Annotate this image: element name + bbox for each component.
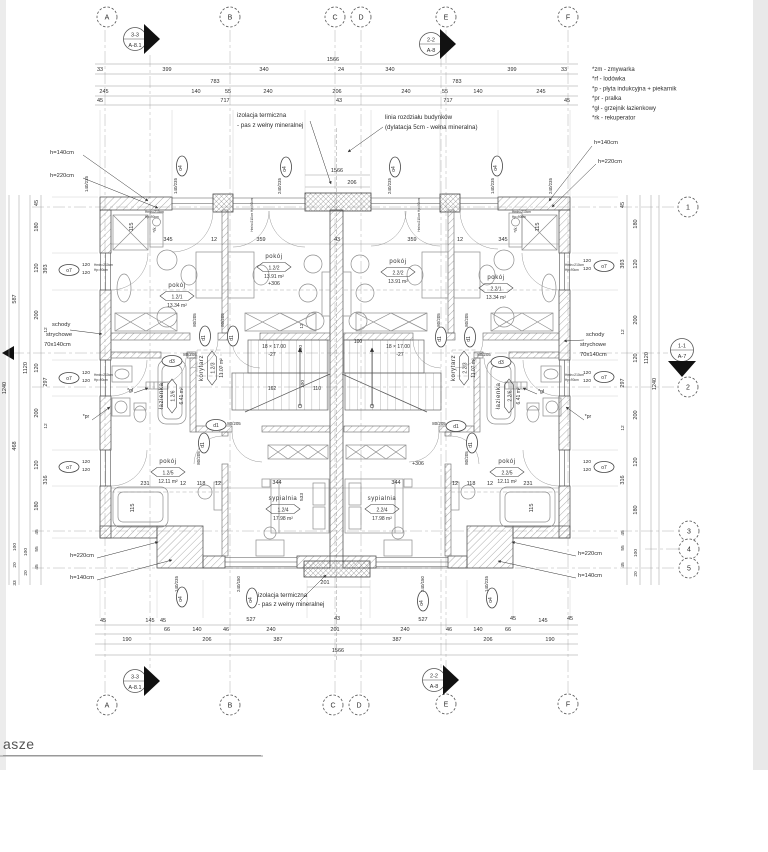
dim-label: 33 xyxy=(561,67,567,73)
dim-label: Hp=90cm xyxy=(565,378,579,382)
grid-bubble-label: E xyxy=(444,702,449,709)
dim-label: 12 xyxy=(620,425,626,431)
room-number: 2.2/4 xyxy=(376,507,387,513)
dim-label: 33 xyxy=(97,67,103,73)
dim-label: 100 xyxy=(12,543,18,551)
dim-label: 12 xyxy=(457,237,463,243)
dim-label: 180 xyxy=(34,222,40,231)
dim-label: 200 xyxy=(34,408,40,417)
dim-label: 45 xyxy=(620,562,626,568)
dim-label: 1240 xyxy=(2,382,8,394)
dim-label: +306 xyxy=(412,461,424,467)
grid-bubble-label: E xyxy=(444,15,449,22)
room-area: 13.34 m² xyxy=(167,303,187,309)
dim-label: Hmin=210cm xyxy=(94,373,113,377)
dim-label: 12 xyxy=(43,423,49,429)
grid-bubble-C: C xyxy=(325,7,345,27)
dim-label: Hp=90cm xyxy=(145,215,159,219)
dim-label: 118 xyxy=(467,481,476,487)
dim-label: 45 xyxy=(510,616,516,622)
grid-bubble-B: B xyxy=(220,7,240,27)
dim-label: 45 xyxy=(34,529,40,535)
room-name: korytarz xyxy=(199,355,205,381)
marker-label: d1 xyxy=(466,336,472,342)
dim-label: 12 xyxy=(487,481,493,487)
dim-label: 55 xyxy=(225,89,231,95)
dim-label: 115 xyxy=(535,223,541,232)
dim-label: 344 xyxy=(272,480,281,486)
dim-label: 45 xyxy=(97,98,103,104)
dim-label: 240 xyxy=(401,89,410,95)
dim-label: 55 xyxy=(620,545,626,551)
dim-label: 190 xyxy=(122,637,131,643)
room-name: sypialnia xyxy=(368,496,397,502)
dim-label: Hp=90cm xyxy=(94,268,108,272)
grid-bubble-B: B xyxy=(220,695,240,715)
dim-label: 100 xyxy=(298,345,304,353)
grid-bubble-label: D xyxy=(356,703,361,710)
dim-label: 80/205 xyxy=(464,313,469,327)
dim-label: -27 xyxy=(268,352,275,358)
dim-label: Hmin=210cm Hp=90cm xyxy=(417,198,421,232)
room-area: 6.41 m² xyxy=(516,387,522,404)
dim-label: 180 xyxy=(633,505,639,514)
fixture-label: *pr xyxy=(83,414,90,420)
room-name: pokój xyxy=(498,459,515,465)
dim-label: 100 xyxy=(354,339,363,345)
room-name: sypialnia xyxy=(269,496,298,502)
dim-label: Hmin=210cm xyxy=(565,263,584,267)
dim-label: 115 xyxy=(529,504,535,513)
dim-label: 120 xyxy=(583,378,591,384)
marker-d1: d1 xyxy=(199,433,210,453)
room-area: 11.07 m² xyxy=(471,358,477,378)
marker-label: d1 xyxy=(229,335,235,341)
dim-label: 120 xyxy=(583,370,591,376)
room-number: 2.2/5 xyxy=(501,470,512,476)
marker-o4: o4 xyxy=(492,156,503,176)
dim-label: 1566 xyxy=(332,648,344,654)
room-area: 17.98 m² xyxy=(372,516,392,522)
marker-label: d3 xyxy=(169,359,175,365)
note: schody xyxy=(52,322,70,328)
grid-bubble-4: 4 xyxy=(679,539,699,559)
dim-label: 45 xyxy=(620,530,626,536)
dim-label: 80/205 xyxy=(220,313,225,327)
dim-label: 20 xyxy=(23,570,29,576)
dim-label: 12 xyxy=(620,329,626,335)
marker-d1: d1 xyxy=(436,327,447,347)
dim-label: Hmin=210cm Hp=90cm xyxy=(250,198,254,232)
dim-label: 80/205 xyxy=(432,421,446,426)
marker-o4: o4 xyxy=(281,157,292,177)
note: strychowe xyxy=(46,332,72,338)
dim-label: 399 xyxy=(507,67,516,73)
section-sheet: A-8.1 xyxy=(128,43,141,49)
dim-label: 18 × 17.00 xyxy=(386,344,410,350)
height-label: h=140cm xyxy=(594,140,618,146)
dim-label: 1566 xyxy=(331,168,343,174)
dim-label: 180 xyxy=(34,501,40,510)
dim-label: 393 xyxy=(43,264,49,273)
marker-label: d1 xyxy=(200,442,206,448)
section-number: 3-3 xyxy=(131,675,139,681)
room-name: pokój xyxy=(159,459,176,465)
grid-bubble-5: 5 xyxy=(679,558,699,578)
grid-bubble-label: 2 xyxy=(686,385,690,392)
note: schody xyxy=(586,332,604,338)
grid-bubble-label: A xyxy=(105,703,110,710)
dim-label: 231 xyxy=(523,481,532,487)
grid-bubble-F: F xyxy=(558,7,578,27)
dim-label: 80/205 xyxy=(192,313,197,327)
dim-label: 100 xyxy=(633,549,639,557)
dim-label: 45 xyxy=(620,202,626,208)
grid-bubble-label: C xyxy=(330,703,335,710)
grid-bubble-E: E xyxy=(436,7,456,27)
dim-label: 240/150 xyxy=(420,576,425,592)
dim-label: 80/205 xyxy=(227,421,241,426)
marker-label: o4 xyxy=(391,166,397,172)
legend-item: *p - płyta indukcyjna + piekarnik xyxy=(592,86,678,92)
room-name: pokój xyxy=(389,259,406,265)
dim-label: 45 xyxy=(564,98,570,104)
note: (dylatacja 5cm - wełna mineralna) xyxy=(385,124,478,131)
dim-label: 162 xyxy=(268,386,277,392)
dim-label: 120 xyxy=(34,460,40,469)
dim-label: 359 xyxy=(256,237,265,243)
dim-label: 140/235 xyxy=(490,178,495,194)
legend-item: *rk - rekuperator xyxy=(592,116,635,122)
dim-label: 180 xyxy=(633,219,639,228)
marker-d1: d1 xyxy=(206,420,226,431)
section-number: 1-1 xyxy=(678,344,686,350)
height-label: h=220cm xyxy=(578,551,602,557)
dim-label: 12 xyxy=(180,481,186,487)
dim-label: Hp=90cm xyxy=(565,268,579,272)
dim-label: 18 × 17.00 xyxy=(262,344,286,350)
grid-bubble-D: D xyxy=(349,695,369,715)
grid-bubble-label: 4 xyxy=(687,547,691,554)
room-number: 2.2/3 xyxy=(462,362,468,373)
marker-label: d3 xyxy=(498,360,504,366)
dim-label: 24 xyxy=(338,67,344,73)
marker-label: d1 xyxy=(453,424,459,430)
grid-bubble-label: B xyxy=(228,703,233,710)
dim-label: 200 xyxy=(633,410,639,419)
marker-o7: o7 xyxy=(59,265,79,276)
dim-label: 55 xyxy=(442,89,448,95)
marker-label: o4 xyxy=(248,597,254,603)
dim-label: 206 xyxy=(202,637,211,643)
dim-label: 387 xyxy=(273,637,282,643)
room-name: korytarz xyxy=(451,355,457,381)
dim-label: 297 xyxy=(620,378,626,387)
marker-d1: d1 xyxy=(465,327,476,347)
dim-label: 145 xyxy=(538,618,547,624)
dim-label: 200 xyxy=(34,310,40,319)
marker-o7: o7 xyxy=(59,462,79,473)
section-sheet: A-8.1 xyxy=(128,685,141,691)
dim-label: 231 xyxy=(140,481,149,487)
marker-label: o4 xyxy=(488,597,494,603)
dim-label: 240/235 xyxy=(387,178,392,194)
dim-label: 527 xyxy=(246,617,255,623)
dim-label: 240 xyxy=(266,627,275,633)
dim-label: 399 xyxy=(162,67,171,73)
dim-label: 206 xyxy=(347,180,356,186)
marker-d1: d1 xyxy=(228,326,239,346)
section-sheet: A-7 xyxy=(678,354,687,360)
dim-label: 45 xyxy=(100,618,106,624)
grid-bubble-A: A xyxy=(97,7,117,27)
note: izolacja termiczna xyxy=(258,592,308,599)
dim-label: 783 xyxy=(452,79,461,85)
marker-d3: d3 xyxy=(491,357,511,368)
dim-label: 393 xyxy=(620,259,626,268)
marker-label: o4 xyxy=(493,165,499,171)
dim-label: 43 xyxy=(336,98,342,104)
dim-label: 206 xyxy=(483,637,492,643)
marker-label: o7 xyxy=(601,465,607,471)
dim-label: 45 xyxy=(34,200,40,206)
dim-label: 43 xyxy=(334,237,340,243)
marker-o4: o4 xyxy=(390,157,401,177)
dim-label: 468 xyxy=(12,441,18,450)
height-label: h=220cm xyxy=(50,173,74,179)
dim-label: 120 xyxy=(583,258,591,264)
dim-label: 120 xyxy=(34,363,40,372)
party-wall xyxy=(330,210,343,556)
dim-label: 140 xyxy=(192,627,201,633)
marker-o7: o7 xyxy=(594,261,614,272)
note: linia rozdziału budynków xyxy=(385,114,453,121)
dim-label: 201 xyxy=(320,580,329,586)
dim-label: 120 xyxy=(633,259,639,268)
marker-label: o4 xyxy=(178,165,184,171)
marker-d1: d1 xyxy=(200,326,211,346)
marker-label: o7 xyxy=(601,375,607,381)
grid-bubble-E: E xyxy=(436,694,456,714)
dim-label: 359 xyxy=(407,237,416,243)
dim-label: 387 xyxy=(392,637,401,643)
dim-label: 45 xyxy=(567,616,573,622)
dim-label: Hmin=210cm xyxy=(145,210,164,214)
grid-bubble-label: B xyxy=(228,15,233,22)
dim-label: 1120 xyxy=(23,362,29,374)
room-number: 1.2/6 xyxy=(170,390,176,401)
height-label: h=220cm xyxy=(70,553,94,559)
dim-label: 80/205 xyxy=(183,352,197,357)
dim-label: 43 xyxy=(334,616,340,622)
note: - pas z wełny mineralnej xyxy=(237,122,303,129)
marker-label: d1 xyxy=(201,335,207,341)
dim-label: 245 xyxy=(536,89,545,95)
dim-label: 120 xyxy=(82,467,90,473)
dim-label: 140/235 xyxy=(484,576,489,592)
legend-item: *rf - lodówka xyxy=(592,77,626,83)
floorplan-sheet: { "page": { "title_fragment": "asze" }, … xyxy=(0,0,768,852)
dim-label: 201 xyxy=(330,627,339,633)
dim-label: 1120 xyxy=(644,352,650,364)
fixture-label: *rk xyxy=(513,227,518,233)
dim-label: -27 xyxy=(396,352,403,358)
dim-label: 140/235 xyxy=(84,176,89,192)
marker-o7: o7 xyxy=(594,462,614,473)
room-number: 1.2/3 xyxy=(210,362,216,373)
dim-label: 140 xyxy=(473,89,482,95)
dim-label: 80/205 xyxy=(464,451,469,465)
dim-label: 140/235 xyxy=(174,576,179,592)
dim-label: 45 xyxy=(160,618,166,624)
dim-label: 717 xyxy=(220,98,229,104)
marker-label: o4 xyxy=(419,600,425,606)
room-number: 1.2/4 xyxy=(277,507,288,513)
dim-label: 12 xyxy=(211,237,217,243)
height-label: h=140cm xyxy=(578,573,602,579)
grid-bubble-C: C xyxy=(323,695,343,715)
dim-label: 55 xyxy=(34,546,40,552)
dim-label: 66 xyxy=(505,627,511,633)
marker-label: o4 xyxy=(282,166,288,172)
marker-label: o7 xyxy=(66,465,72,471)
marker-d1: d1 xyxy=(446,421,466,432)
marker-label: d1 xyxy=(468,442,474,448)
dim-label: 33 xyxy=(12,580,18,586)
section-sheet: A-8 xyxy=(427,48,436,54)
room-area: 13.91 m² xyxy=(388,279,408,285)
dim-label: 783 xyxy=(210,79,219,85)
grid-bubble-label: A xyxy=(105,15,110,22)
room-name: łazienka xyxy=(159,383,165,410)
note: 70x140cm xyxy=(580,352,607,358)
dim-label: 533 xyxy=(299,493,305,501)
grid-bubble-A: A xyxy=(97,695,117,715)
section-number: 3-3 xyxy=(131,33,139,39)
room-number: 1.2/2 xyxy=(268,265,279,271)
marker-label: o7 xyxy=(66,376,72,382)
dim-label: 12 xyxy=(299,323,304,329)
grid-bubble-2: 2 xyxy=(678,377,698,397)
dim-label: 120 xyxy=(583,467,591,473)
room-area: 13.91 m² xyxy=(264,274,284,280)
note: strychowe xyxy=(580,342,606,348)
dim-label: Hp=90cm xyxy=(512,215,526,219)
note: izolacja termiczna xyxy=(237,112,287,119)
marker-o7: o7 xyxy=(594,372,614,383)
dim-label: 120 xyxy=(633,353,639,362)
grid-bubble-D: D xyxy=(351,7,371,27)
room-name: łazienka xyxy=(496,383,502,410)
dim-label: 344 xyxy=(391,480,400,486)
height-label: h=140cm xyxy=(50,150,74,156)
dim-label: 46 xyxy=(446,627,452,633)
room-name: pokój xyxy=(265,254,282,260)
grid-bubble-label: C xyxy=(332,15,337,22)
dim-label: 120 xyxy=(583,459,591,465)
dim-label: 345 xyxy=(498,237,507,243)
marker-label: d1 xyxy=(437,336,443,342)
dim-label: 80/205 xyxy=(477,352,491,357)
grid-bubble-1: 1 xyxy=(678,197,698,217)
dim-label: 345 xyxy=(163,237,172,243)
marker-label: o4 xyxy=(178,596,184,602)
dim-label: 115 xyxy=(130,504,136,513)
dim-label: 240/150 xyxy=(236,576,241,592)
dim-label: 527 xyxy=(418,617,427,623)
dim-label: 297 xyxy=(43,377,49,386)
dim-label: 140 xyxy=(473,627,482,633)
dim-label: 240/235 xyxy=(548,178,553,194)
dim-label: 1240 xyxy=(652,378,658,390)
marker-d3: d3 xyxy=(162,356,182,367)
fixture-label: *rk xyxy=(152,227,157,233)
dim-label: 120 xyxy=(82,378,90,384)
room-area: 12.11 m² xyxy=(158,479,178,485)
dim-label: 316 xyxy=(620,475,626,484)
floor-plan-drawing: ABCDEFABCDEF12345o4o4o4o4o4o4o4o4o7o7o7o… xyxy=(0,0,768,852)
dim-label: Hmin=210cm xyxy=(94,263,113,267)
marker-o7: o7 xyxy=(59,373,79,384)
dim-label: 12 xyxy=(215,481,221,487)
marker-o4: o4 xyxy=(247,588,258,608)
legend-item: *pr - pralka xyxy=(592,96,622,102)
room-number: 1.2/1 xyxy=(171,294,182,300)
room-name: pokój xyxy=(487,275,504,281)
dim-label: 140 xyxy=(191,89,200,95)
page-edge-right xyxy=(753,0,768,770)
marker-d1: d1 xyxy=(467,433,478,453)
marker-o4: o4 xyxy=(177,156,188,176)
dim-label: 120 xyxy=(82,370,90,376)
dim-label: 145 xyxy=(145,618,154,624)
dim-label: 340 xyxy=(385,67,394,73)
dim-label: 190 xyxy=(545,637,554,643)
dim-label: 120 xyxy=(82,459,90,465)
dim-label: 118 xyxy=(197,481,206,487)
dim-label: 240 xyxy=(263,89,272,95)
room-area: 12.11 m² xyxy=(497,479,517,485)
dim-label: 206 xyxy=(332,89,341,95)
dim-label: 100 xyxy=(23,548,29,556)
dim-label: 45 xyxy=(34,564,40,570)
marker-label: d1 xyxy=(213,423,219,429)
dim-label: 120 xyxy=(34,263,40,272)
section-sheet: A-8 xyxy=(430,684,439,690)
section-number: 2-2 xyxy=(430,674,438,680)
dim-label: 1566 xyxy=(327,57,339,63)
dim-label: 80/205 xyxy=(196,451,201,465)
room-name: pokój xyxy=(168,283,185,289)
dim-label: 110 xyxy=(313,386,321,392)
dim-label: 316 xyxy=(43,475,49,484)
section-number: 2-2 xyxy=(427,38,435,44)
dim-label: 245 xyxy=(99,89,108,95)
dim-label: 120 xyxy=(82,270,90,276)
dim-label: 120 xyxy=(633,457,639,466)
dim-label: 240 xyxy=(400,627,409,633)
dim-label: 115 xyxy=(129,223,135,232)
dim-label: 717 xyxy=(443,98,452,104)
room-number: 2.2/6 xyxy=(507,390,513,401)
dim-label: 20 xyxy=(12,562,18,568)
height-label: h=220cm xyxy=(598,159,622,165)
dim-label: 66 xyxy=(164,627,170,633)
grid-bubble-label: 3 xyxy=(687,529,691,536)
grid-bubble-F: F xyxy=(558,694,578,714)
dim-label: 200 xyxy=(633,315,639,324)
room-area: 6.41 m² xyxy=(179,387,185,404)
